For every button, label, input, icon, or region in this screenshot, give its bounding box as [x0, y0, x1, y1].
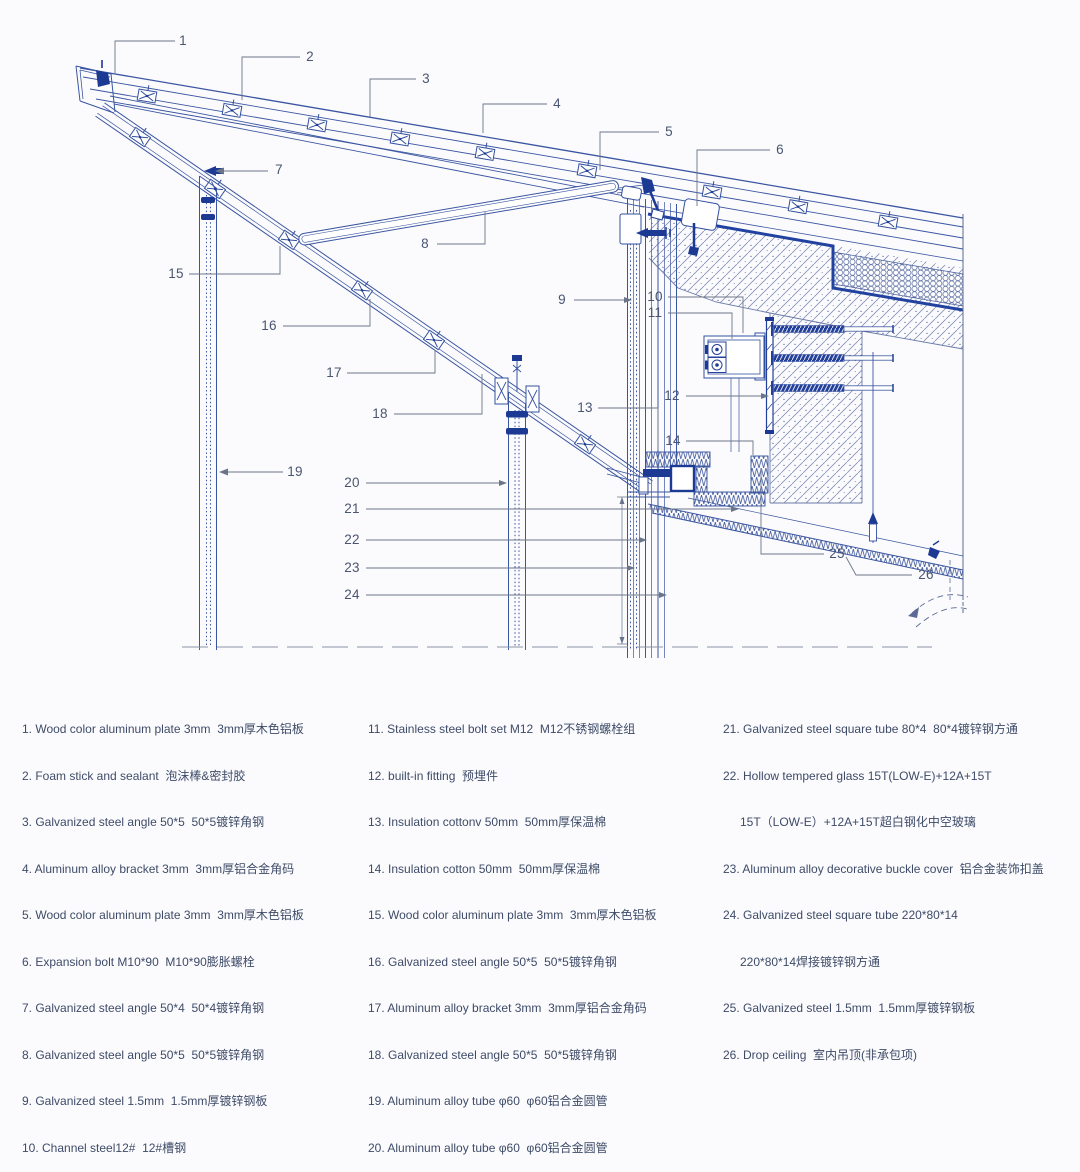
insulation-cotton-14	[751, 456, 768, 493]
callout-4: 4	[542, 96, 572, 111]
insulation-cotton-14	[696, 466, 707, 492]
hanger-arrow-icon	[868, 512, 878, 524]
legend-item: 8. Galvanized steel angle 50*5 50*5镀锌角钢	[22, 1048, 304, 1064]
callout-25: 25	[822, 546, 852, 561]
callout-15: 15	[161, 266, 191, 281]
bolt-arrow-icon	[204, 166, 216, 176]
callout-1: 1	[168, 33, 198, 48]
legend-item: 13. Insulation cottonv 50mm 50mm厚保温棉	[368, 815, 657, 831]
column-left-tube	[200, 166, 225, 650]
concrete-structure	[648, 214, 963, 616]
callout-9: 9	[547, 292, 577, 307]
callout-6: 6	[765, 142, 795, 157]
callout-10: 10	[640, 289, 670, 304]
concrete-beam	[770, 313, 862, 503]
callout-18: 18	[365, 406, 395, 421]
callout-24: 24	[337, 587, 367, 602]
roof-assembly	[80, 68, 963, 261]
callout-11: 11	[640, 305, 670, 320]
legend-item: 23. Aluminum alloy decorative buckle cov…	[723, 862, 1044, 878]
roof-bolt-icon	[641, 177, 655, 194]
callout-3: 3	[411, 71, 441, 86]
eave-junction	[607, 452, 768, 644]
column-middle-tube	[495, 355, 539, 650]
callout-13: 13	[570, 400, 600, 415]
legend-item: 2. Foam stick and sealant 泡沫棒&密封胶	[22, 769, 304, 785]
legend-item: 18. Galvanized steel angle 50*5 50*5镀锌角钢	[368, 1048, 657, 1064]
callout-2: 2	[295, 49, 325, 64]
legend-item: 19. Aluminum alloy tube φ60 φ60铝合金圆管	[368, 1094, 657, 1110]
legend-column-3: 21. Galvanized steel square tube 80*4 80…	[723, 691, 1044, 1079]
callout-5: 5	[654, 124, 684, 139]
callout-26: 26	[911, 567, 941, 582]
legend-item: 22. Hollow tempered glass 15T(LOW-E)+12A…	[723, 769, 1044, 785]
callout-17: 17	[319, 365, 349, 380]
insulation-cotton-14	[694, 492, 765, 506]
legend-item: 25. Galvanized steel 1.5mm 1.5mm厚镀锌钢板	[723, 1001, 1044, 1017]
insulation-cotton-13	[646, 452, 710, 467]
callout-19: 19	[280, 464, 310, 479]
legend-item: 16. Galvanized steel angle 50*5 50*5镀锌角钢	[368, 955, 657, 971]
callout-23: 23	[337, 560, 367, 575]
legend-item-wrap: 15T（LOW-E）+12A+15T超白钢化中空玻璃	[723, 815, 1044, 831]
callout-12: 12	[657, 388, 687, 403]
legend-item: 17. Aluminum alloy bracket 3mm 3mm厚铝合金角码	[368, 1001, 657, 1017]
legend-column-2: 11. Stainless steel bolt set M12 M12不锈钢螺…	[368, 691, 657, 1172]
callout-22: 22	[337, 532, 367, 547]
legend-item: 3. Galvanized steel angle 50*5 50*5镀锌角钢	[22, 815, 304, 831]
legend-item: 7. Galvanized steel angle 50*4 50*4镀锌角钢	[22, 1001, 304, 1017]
ceiling-clip-icon	[928, 547, 940, 559]
legend-item: 10. Channel steel12# 12#槽钢	[22, 1141, 304, 1157]
steel-square-tube	[671, 466, 694, 491]
legend-item: 4. Aluminum alloy bracket 3mm 3mm厚铝合金角码	[22, 862, 304, 878]
break-line-arrow-icon	[908, 595, 970, 627]
callout-16: 16	[254, 318, 284, 333]
legend-item: 12. built-in fitting 预埋件	[368, 769, 657, 785]
legend-item: 1. Wood color aluminum plate 3mm 3mm厚木色铝…	[22, 722, 304, 738]
legend-item: 21. Galvanized steel square tube 80*4 80…	[723, 722, 1044, 738]
built-in-fitting-plate	[767, 320, 774, 432]
legend-item: 20. Aluminum alloy tube φ60 φ60铝合金圆管	[368, 1141, 657, 1157]
callout-7: 7	[264, 162, 294, 177]
legend-item: 26. Drop ceiling 室内吊顶(非承包项)	[723, 1048, 1044, 1064]
legend-item-wrap: 220*80*14焊接镀锌钢方通	[723, 955, 1044, 971]
callout-8: 8	[410, 236, 440, 251]
legend-item: 9. Galvanized steel 1.5mm 1.5mm厚镀锌钢板	[22, 1094, 304, 1110]
legend-item: 5. Wood color aluminum plate 3mm 3mm厚木色铝…	[22, 908, 304, 924]
legend-item: 14. Insulation cotton 50mm 50mm厚保温棉	[368, 862, 657, 878]
dimension-line	[617, 497, 627, 644]
legend-item: 15. Wood color aluminum plate 3mm 3mm厚木色…	[368, 908, 657, 924]
legend-item: 6. Expansion bolt M10*90 M10*90膨胀螺栓	[22, 955, 304, 971]
callout-20: 20	[337, 475, 367, 490]
callout-14: 14	[658, 433, 688, 448]
legend-item: 11. Stainless steel bolt set M12 M12不锈钢螺…	[368, 722, 657, 738]
steel-angle-panel	[298, 180, 644, 246]
callout-21: 21	[337, 501, 367, 516]
legend-item: 24. Galvanized steel square tube 220*80*…	[723, 908, 1044, 924]
legend-column-1: 1. Wood color aluminum plate 3mm 3mm厚木色铝…	[22, 691, 304, 1172]
